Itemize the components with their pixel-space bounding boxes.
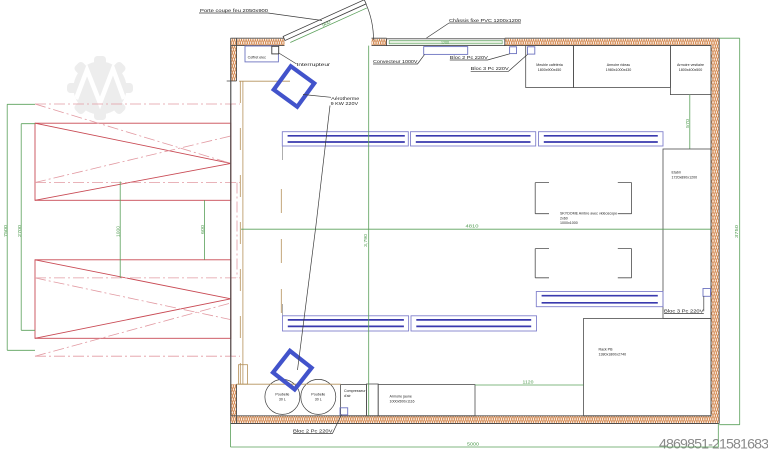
svg-text:3750: 3750 (734, 224, 739, 238)
svg-text:Interrupteur: Interrupteur (297, 62, 331, 67)
svg-text:1720x890x1200: 1720x890x1200 (672, 175, 698, 179)
svg-text:Armoire jaune: Armoire jaune (390, 395, 412, 399)
svg-text:1980x1000x430: 1980x1000x430 (606, 68, 632, 72)
svg-text:570: 570 (685, 118, 690, 128)
svg-text:Bloc 2 Pc 220V: Bloc 2 Pc 220V (450, 55, 488, 60)
svg-text:Coffret elec: Coffret elec (248, 56, 267, 60)
svg-text:Bloc 3 Pc 220V: Bloc 3 Pc 220V (471, 66, 509, 71)
svg-text:30 L: 30 L (279, 397, 286, 401)
svg-text:d'air: d'air (344, 394, 351, 398)
svg-text:2700: 2700 (17, 224, 22, 237)
svg-text:Bloc 2 Pc 220V: Bloc 2 Pc 220V (293, 428, 333, 433)
svg-text:Bloc 3 Pc 220V: Bloc 3 Pc 220V (664, 309, 704, 314)
svg-text:3,790: 3,790 (363, 233, 368, 247)
svg-text:1000x1000: 1000x1000 (560, 221, 578, 225)
svg-text:5000: 5000 (467, 442, 480, 447)
svg-text:1200: 1200 (441, 40, 450, 45)
svg-text:Armoire vestiaire: Armoire vestiaire (677, 63, 704, 67)
svg-text:Châssis fixe PVC 1200x1200: Châssis fixe PVC 1200x1200 (449, 18, 522, 23)
svg-text:7500: 7500 (3, 224, 8, 237)
svg-text:1120: 1120 (523, 380, 535, 385)
svg-text:9 KW 220V: 9 KW 220V (331, 101, 359, 106)
svg-text:30 L: 30 L (315, 397, 322, 401)
svg-text:1000: 1000 (116, 225, 121, 237)
svg-text:1380x1800x2740: 1380x1800x2740 (599, 352, 627, 356)
svg-text:4810: 4810 (466, 224, 480, 229)
svg-text:Etabli: Etabli (672, 171, 681, 175)
svg-text:4869851-21581683: 4869851-21581683 (659, 436, 768, 452)
svg-text:Meuble cafétéria: Meuble cafétéria (536, 63, 563, 67)
svg-text:1800x400x500: 1800x400x500 (679, 68, 703, 72)
svg-text:Poubelle: Poubelle (275, 393, 289, 397)
svg-text:SKYDOME Ambre avec vidéoscope: SKYDOME Ambre avec vidéoscope (560, 212, 617, 216)
svg-text:Armoire rideau: Armoire rideau (607, 63, 631, 67)
svg-text:1000x500x1116: 1000x500x1116 (390, 399, 415, 403)
svg-text:1800x900x450: 1800x900x450 (538, 68, 562, 72)
svg-text:Compresseur: Compresseur (344, 389, 366, 393)
svg-text:600: 600 (200, 224, 205, 234)
svg-text:Rack PB: Rack PB (599, 348, 614, 352)
svg-text:Porte coupe feu 2050x900: Porte coupe feu 2050x900 (200, 8, 269, 13)
svg-text:Poubelle: Poubelle (311, 393, 325, 397)
svg-text:2x60: 2x60 (560, 216, 568, 220)
svg-text:Convecteur 1000V: Convecteur 1000V (373, 59, 418, 64)
